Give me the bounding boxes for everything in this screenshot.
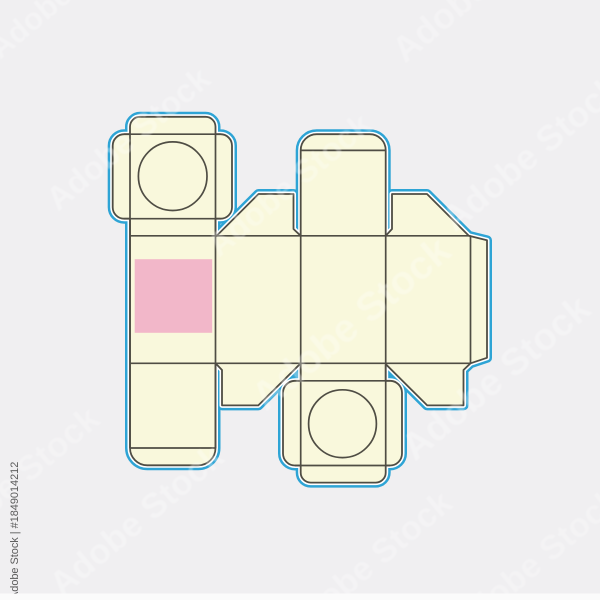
- svg-text:Adobe Stock | #1849014212: Adobe Stock | #1849014212: [9, 462, 21, 599]
